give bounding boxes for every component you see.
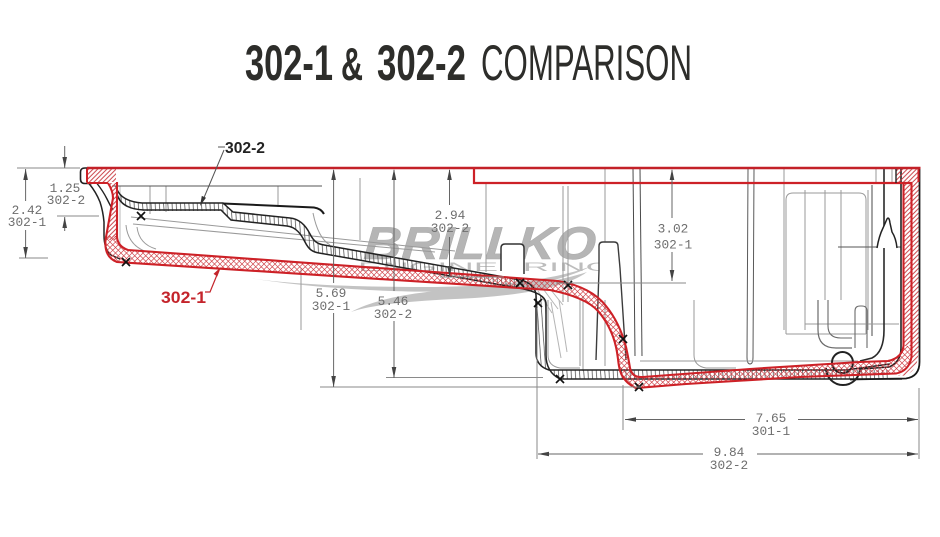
svg-text:302-2: 302-2 — [225, 140, 265, 157]
svg-text:COMPARISON: COMPARISON — [481, 35, 692, 91]
svg-text:302-1: 302-1 — [245, 35, 333, 91]
svg-text:&: & — [341, 38, 363, 90]
svg-text:302-1: 302-1 — [654, 238, 693, 253]
svg-text:301-1: 301-1 — [752, 424, 791, 439]
svg-text:302-1: 302-1 — [8, 215, 47, 230]
svg-text:3.02: 3.02 — [658, 222, 689, 237]
svg-text:302-2: 302-2 — [377, 35, 466, 91]
svg-text:302-2: 302-2 — [710, 458, 748, 473]
svg-text:302-1: 302-1 — [161, 288, 206, 307]
svg-text:302-2: 302-2 — [374, 307, 412, 322]
svg-text:302-2: 302-2 — [47, 193, 85, 208]
svg-text:302-2: 302-2 — [431, 221, 469, 236]
svg-text:302-1: 302-1 — [312, 299, 351, 314]
